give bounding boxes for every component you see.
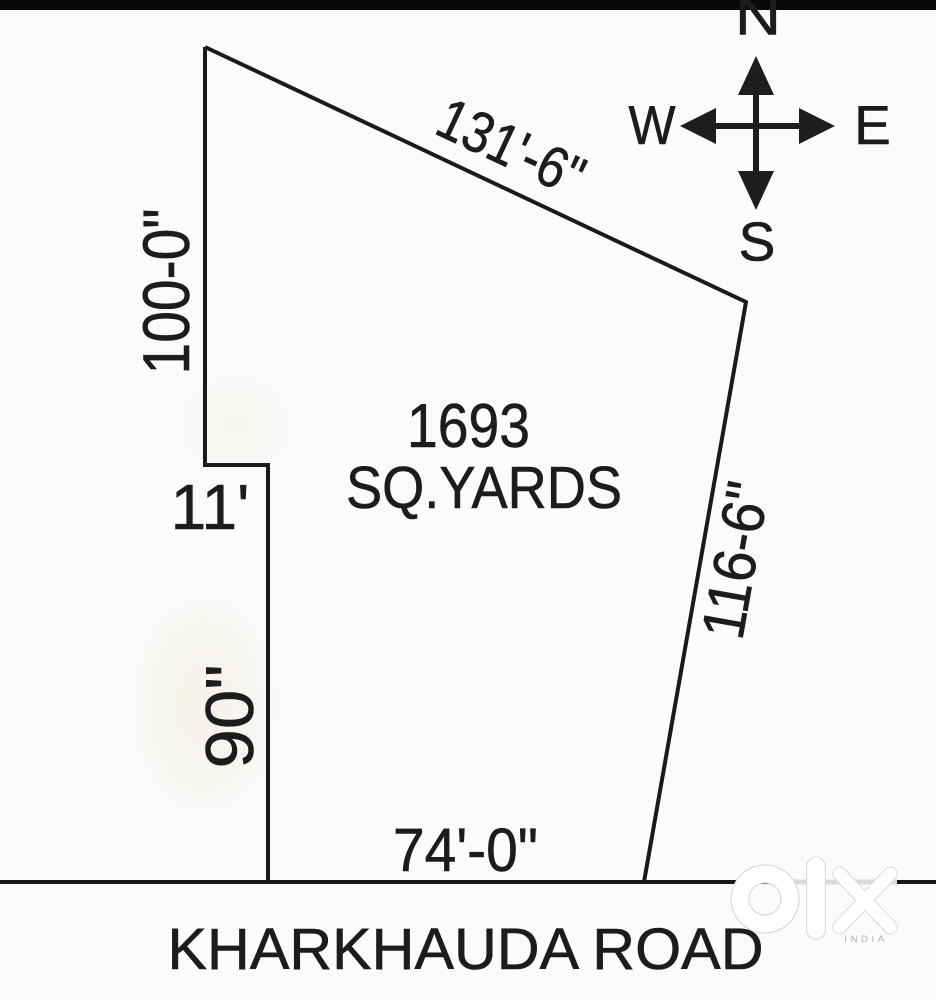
svg-text:11': 11' — [171, 471, 250, 543]
svg-text:S: S — [739, 211, 776, 273]
svg-text:N: N — [735, 0, 781, 47]
svg-text:INDIA: INDIA — [844, 934, 887, 945]
svg-text:KHARKHAUDA ROAD: KHARKHAUDA ROAD — [168, 917, 764, 982]
svg-text:90": 90" — [192, 665, 268, 769]
svg-text:W: W — [629, 94, 676, 156]
svg-text:E: E — [854, 94, 891, 156]
svg-text:1693: 1693 — [407, 392, 530, 461]
svg-text:100-0": 100-0" — [129, 209, 203, 375]
svg-text:74'-0": 74'-0" — [393, 816, 538, 884]
svg-text:SQ.YARDS: SQ.YARDS — [346, 455, 622, 521]
